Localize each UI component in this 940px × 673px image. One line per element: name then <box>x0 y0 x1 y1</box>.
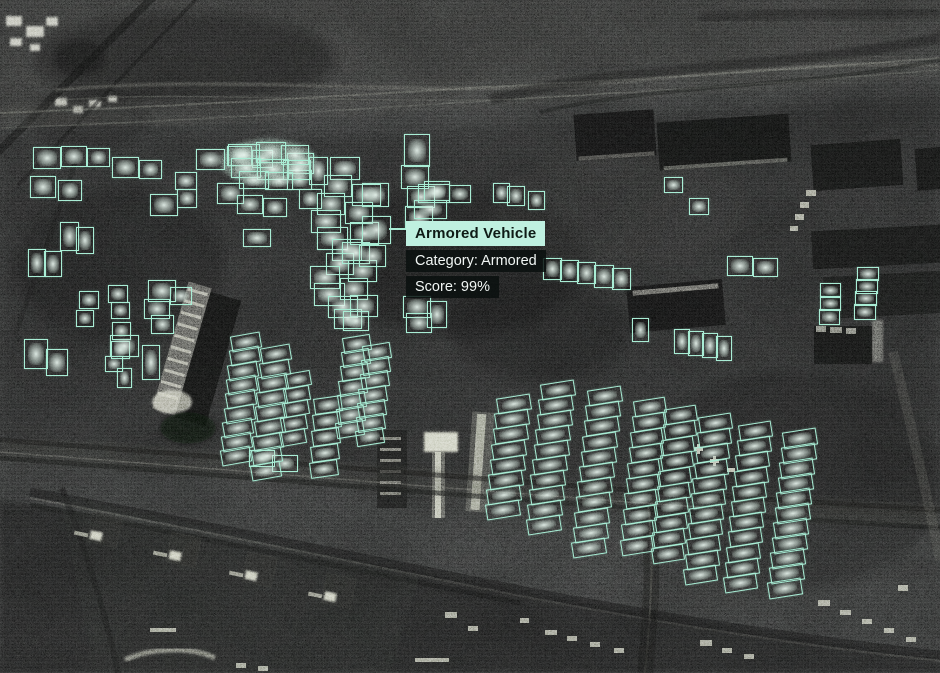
detection-box[interactable] <box>414 200 447 219</box>
detection-box[interactable] <box>854 304 876 320</box>
detection-box[interactable] <box>265 172 293 190</box>
detection-box[interactable] <box>612 268 631 290</box>
detection-box[interactable] <box>44 251 62 277</box>
detection-box[interactable] <box>362 183 389 207</box>
detection-box[interactable] <box>111 302 130 319</box>
detection-box[interactable] <box>110 335 139 357</box>
detection-box[interactable] <box>404 134 430 167</box>
detection-tooltip: Armored Vehicle Category: Armored Score:… <box>406 221 546 298</box>
detection-box[interactable] <box>632 318 649 342</box>
detection-box[interactable] <box>237 195 263 214</box>
detection-box[interactable] <box>449 185 471 203</box>
detection-box[interactable] <box>46 349 68 376</box>
detection-box[interactable] <box>79 291 99 309</box>
detection-box[interactable] <box>485 500 521 521</box>
detection-box[interactable] <box>87 148 110 167</box>
detection-box[interactable] <box>24 339 48 369</box>
detection-box[interactable] <box>76 227 94 254</box>
detection-box[interactable] <box>196 149 225 170</box>
detection-box[interactable] <box>767 577 803 599</box>
detection-box[interactable] <box>716 336 732 361</box>
tooltip-title: Armored Vehicle <box>406 221 545 246</box>
detection-box[interactable] <box>689 198 709 215</box>
sar-detection-viewer[interactable]: Armored Vehicle Category: Armored Score:… <box>0 0 940 673</box>
detection-box[interactable] <box>76 310 94 327</box>
detection-box[interactable] <box>243 229 271 247</box>
detection-box[interactable] <box>427 301 447 328</box>
detection-box[interactable] <box>117 368 132 388</box>
detection-box[interactable] <box>424 181 450 201</box>
detection-box[interactable] <box>170 287 192 305</box>
detection-box[interactable] <box>139 160 162 179</box>
detection-box[interactable] <box>142 345 160 380</box>
detection-box[interactable] <box>753 258 778 277</box>
detection-box[interactable] <box>112 157 139 178</box>
detection-box[interactable] <box>263 198 287 217</box>
detection-box[interactable] <box>219 446 251 467</box>
detection-box[interactable] <box>359 245 386 267</box>
detection-box[interactable] <box>362 216 391 244</box>
detection-box[interactable] <box>664 177 683 193</box>
detection-box[interactable] <box>58 180 82 201</box>
detection-box[interactable] <box>177 189 197 208</box>
detection-box[interactable] <box>594 265 614 288</box>
detection-box[interactable] <box>175 172 197 190</box>
detection-box[interactable] <box>309 459 339 479</box>
detection-box[interactable] <box>727 256 753 276</box>
tooltip-score: Score: 99% <box>406 276 499 298</box>
tooltip-category: Category: Armored <box>406 250 546 272</box>
detection-box[interactable] <box>151 315 174 334</box>
detections-layer <box>0 0 940 673</box>
detection-box[interactable] <box>355 427 385 447</box>
detection-box[interactable] <box>108 285 128 303</box>
detection-box[interactable] <box>343 311 369 331</box>
detection-box[interactable] <box>150 194 178 216</box>
detection-box[interactable] <box>33 147 61 169</box>
detection-box[interactable] <box>30 176 56 198</box>
detection-box[interactable] <box>61 146 87 167</box>
tooltip-leader-line <box>389 228 406 230</box>
detection-box[interactable] <box>819 309 840 325</box>
detection-box[interactable] <box>507 186 525 206</box>
detection-box[interactable] <box>528 191 545 210</box>
detection-box[interactable] <box>279 428 307 447</box>
